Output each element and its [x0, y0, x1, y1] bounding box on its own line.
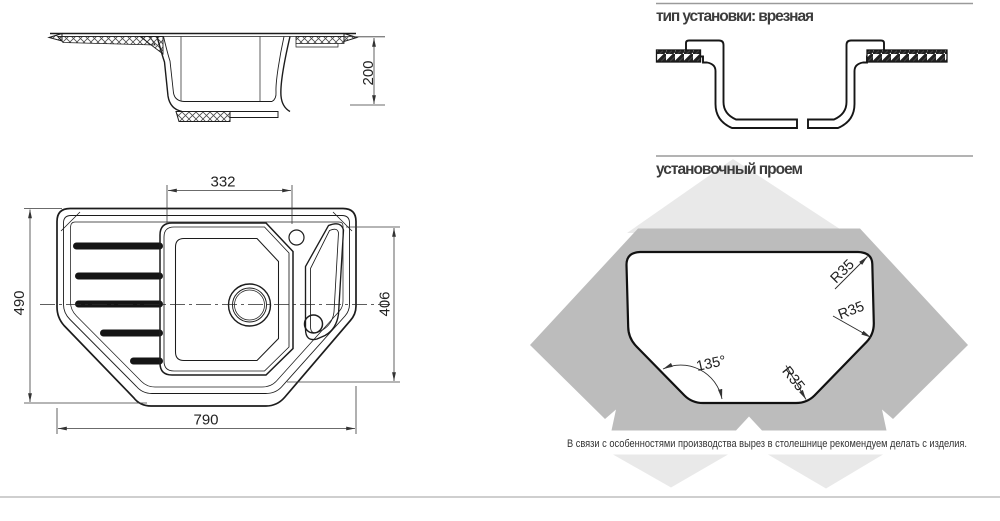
- main-bowl-inner-wall: [176, 239, 279, 361]
- bowl-base-hatch: [176, 112, 230, 122]
- main-bowl-rim-outer: [160, 223, 293, 375]
- drainboard-section-hatch: [58, 37, 155, 46]
- bowl-wall-left-inner: [164, 37, 273, 102]
- cross-section-drawing: [657, 41, 948, 129]
- side-view-drawing: [49, 34, 357, 122]
- secondary-bowl-drain: [305, 315, 323, 333]
- production-note: В связи с особенностями производства выр…: [567, 438, 967, 450]
- drainboard-ribs: [73, 243, 163, 365]
- rib-4: [100, 330, 163, 337]
- side-view-depth-dimension: 200: [360, 60, 377, 85]
- overall-depth-dimension: 490: [11, 290, 28, 315]
- countertop-section-right: [867, 50, 947, 62]
- bowl-wall-right-outer: [281, 37, 290, 112]
- installation-type-title: тип установки: врезная: [656, 8, 814, 25]
- watermark-bottom-left-triangle: [613, 455, 728, 488]
- rib-2: [75, 273, 163, 280]
- watermark-bottom-right-triangle: [768, 455, 883, 489]
- bowl-width-dimension: 332: [210, 174, 235, 191]
- right-rim-hatch: [296, 37, 344, 44]
- right-tray-line: [296, 44, 338, 48]
- cutout-section-title: установочный проем: [656, 161, 803, 178]
- top-view-drawing: [40, 209, 390, 407]
- rib-3: [75, 301, 163, 308]
- drain-hole-inner: [235, 290, 265, 320]
- rib-1: [73, 243, 163, 250]
- drawing-canvas: 200: [0, 0, 1000, 521]
- drain-hole-middle: [233, 288, 267, 322]
- rib-5: [130, 358, 163, 365]
- bowl-base-pad: [230, 112, 278, 118]
- tap-hole: [289, 230, 304, 245]
- countertop-section-left: [657, 50, 701, 62]
- section-profile-left: [686, 41, 797, 129]
- inner-depth-dimension: 406: [377, 291, 394, 316]
- rim-right-tip: [344, 34, 357, 42]
- secondary-bowl-rim-inner: [311, 229, 339, 333]
- bowl-wall-right-inner: [272, 37, 284, 102]
- overall-width-dimension: 790: [193, 412, 218, 429]
- technical-drawing-page: 200: [0, 0, 1000, 521]
